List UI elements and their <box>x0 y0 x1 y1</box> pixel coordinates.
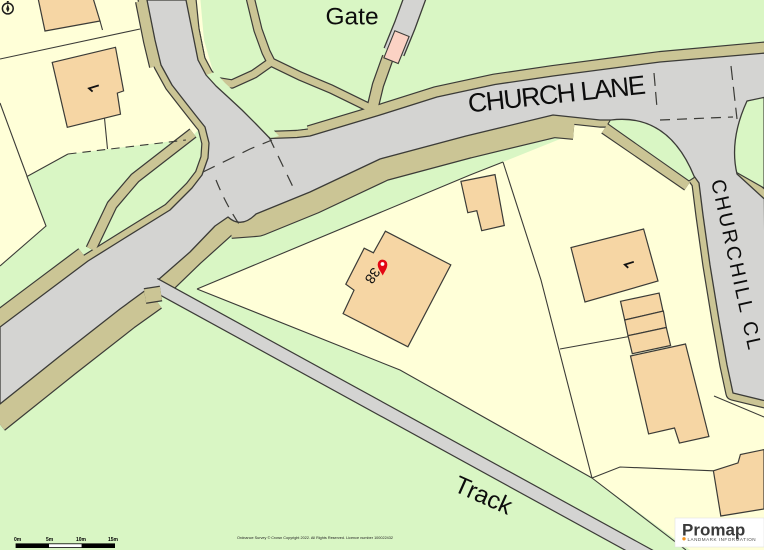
svg-text:10m: 10m <box>76 537 87 543</box>
svg-text:Ordnance Survey © Crown Copyri: Ordnance Survey © Crown Copyright 2022. … <box>237 535 394 540</box>
svg-text:Gate: Gate <box>326 3 379 30</box>
svg-text:15m: 15m <box>108 537 119 543</box>
svg-text:5m: 5m <box>46 537 54 543</box>
svg-text:0m: 0m <box>14 537 22 543</box>
svg-text:LANDMARK INFORMATION: LANDMARK INFORMATION <box>688 537 757 542</box>
